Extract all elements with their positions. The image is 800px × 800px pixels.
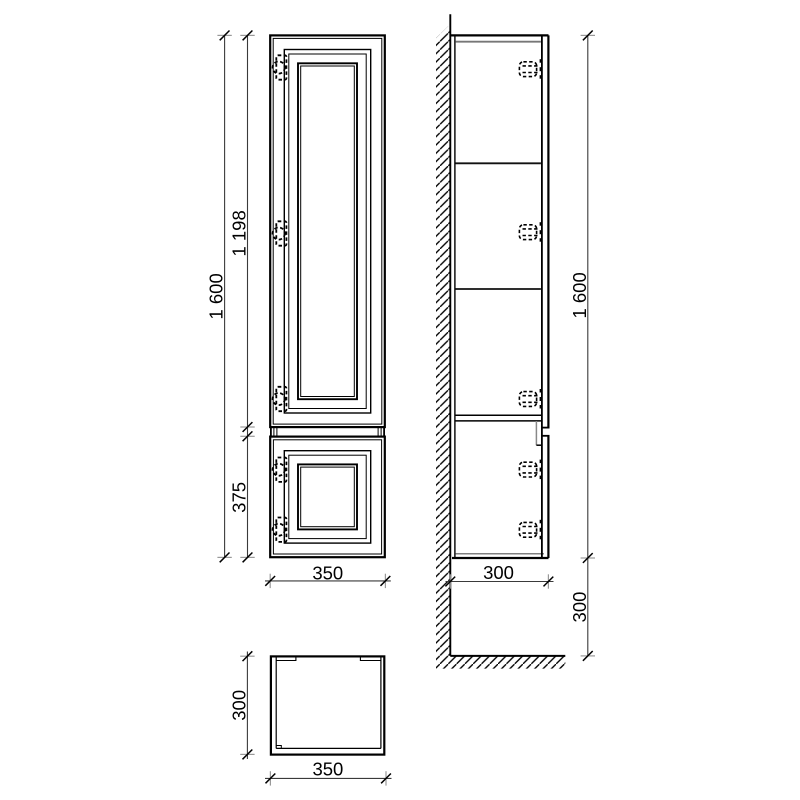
svg-text:300: 300 — [569, 592, 590, 623]
svg-text:300: 300 — [228, 690, 249, 721]
svg-text:300: 300 — [483, 562, 514, 583]
svg-text:1 198: 1 198 — [229, 210, 250, 256]
svg-text:350: 350 — [312, 758, 343, 779]
svg-text:1 600: 1 600 — [569, 272, 590, 318]
svg-text:1 600: 1 600 — [206, 273, 227, 319]
svg-text:375: 375 — [229, 482, 250, 513]
svg-text:350: 350 — [312, 562, 343, 583]
